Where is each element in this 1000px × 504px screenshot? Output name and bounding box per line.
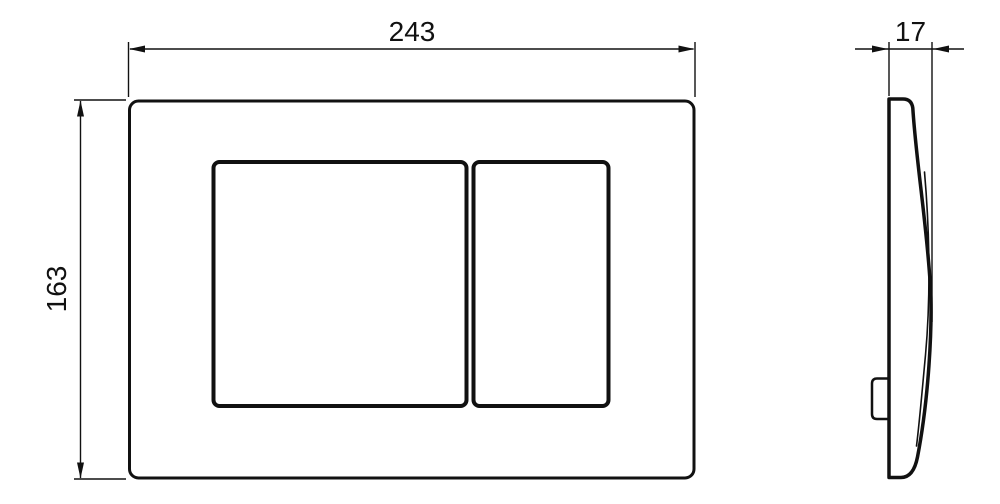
front-view [130,101,695,478]
width-dimension-label: 243 [389,16,436,47]
side-profile-outline [889,99,931,478]
arrowhead-inward-right-icon [872,46,888,53]
technical-drawing: 243 163 17 [0,0,1000,504]
depth-dimension-label: 17 [895,16,926,47]
dimension-width: 243 [129,16,696,97]
arrowhead-down-icon [77,463,84,479]
mounting-tab [872,379,889,420]
height-dimension-label: 163 [41,266,72,313]
arrowhead-right-icon [679,46,695,53]
small-flush-button [474,162,609,406]
arrowhead-up-icon [77,101,84,117]
arrowhead-left-icon [129,46,145,53]
side-view [872,99,931,478]
dimension-height: 163 [41,100,126,479]
large-flush-button [214,162,467,406]
drawing-canvas: 243 163 17 [0,0,1000,504]
arrowhead-inward-left-icon [933,46,949,53]
